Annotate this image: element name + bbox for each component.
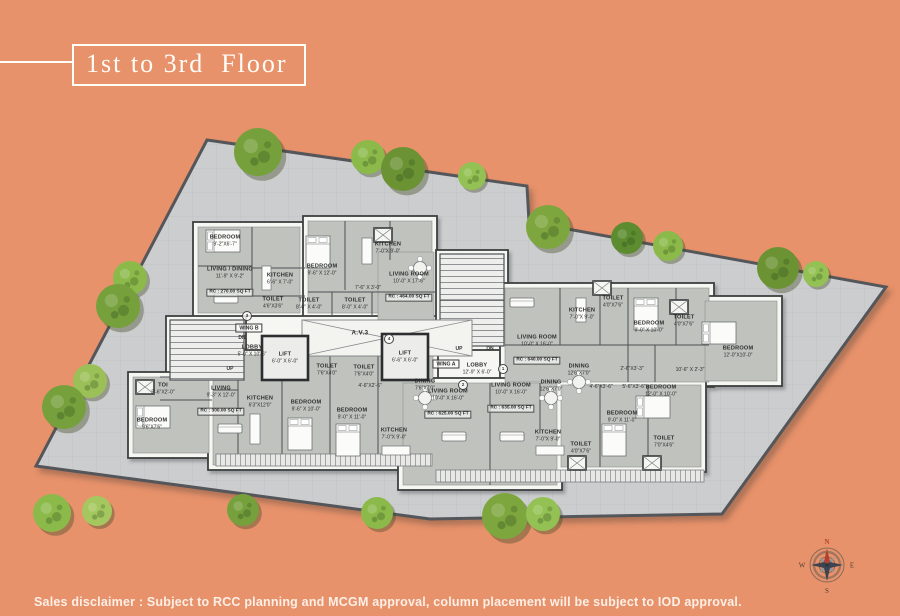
shaft-icon [136,380,154,394]
bed-icon [336,424,360,456]
bed-icon [602,424,626,456]
bed-icon [206,230,240,252]
site-plan-svg [0,0,900,616]
sofa-icon [510,298,534,307]
sofa-icon [218,424,242,433]
site-plan-page: BEDROOM 9'-2"X6'-7" LIVING / DINING 11'-… [0,0,900,616]
page-title: 1st to 3rd Floor [86,49,288,79]
floor-title-box: 1st to 3rd Floor [72,44,306,86]
shaft-icon [643,456,661,470]
kitchen-counter-icon [382,446,410,455]
compass-rose-icon: N E S W [795,533,859,597]
sofa-icon [500,432,524,441]
bed-icon [702,322,736,344]
shaft-icon [670,300,688,314]
sofa-icon [442,432,466,441]
compass-w-label: W [799,562,806,570]
tree-icon [227,494,262,529]
bed-icon [636,396,670,418]
bed-icon [306,236,330,268]
kitchen-counter-icon [576,298,586,322]
bed-icon [136,406,170,428]
kitchen-counter-icon [536,446,564,455]
shaft-icon [593,281,611,295]
kitchen-counter-icon [250,414,260,444]
compass-s-label: S [825,587,829,595]
sofa-icon [214,294,238,303]
shaft-icon [568,456,586,470]
compass-n-label: N [824,538,829,546]
tree-icon [82,496,115,529]
shaft-icon [374,228,392,242]
title-rule-line [0,61,72,63]
bed-icon [634,298,658,330]
sales-disclaimer: Sales disclaimer : Subject to RCC planni… [34,595,742,609]
kitchen-counter-icon [362,238,372,264]
tree-icon [33,494,74,536]
bed-icon [288,418,312,450]
compass-e-label: E [850,562,854,570]
kitchen-counter-icon [262,266,271,290]
